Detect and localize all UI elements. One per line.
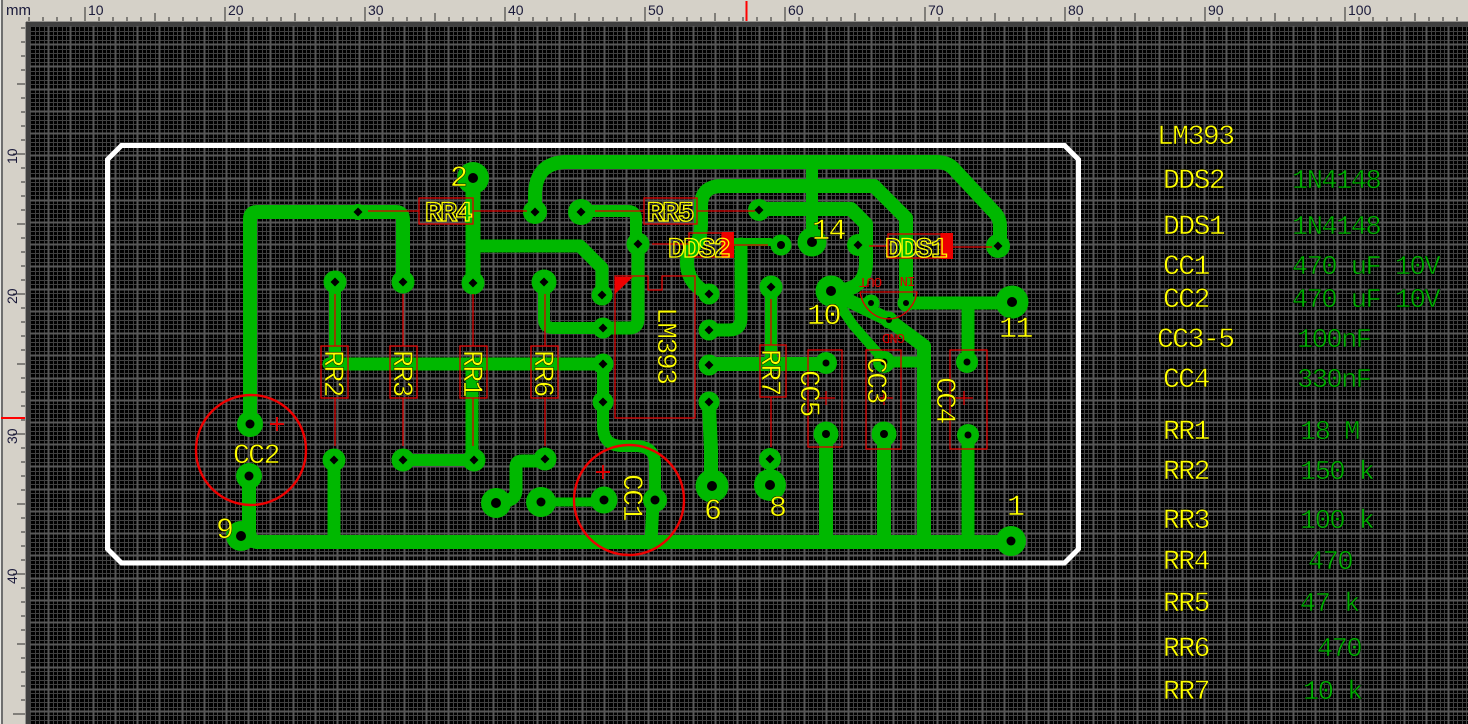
svg-text:RR5: RR5: [647, 199, 694, 230]
svg-text:20: 20: [4, 288, 20, 304]
svg-text:DDS2: DDS2: [668, 235, 730, 266]
svg-text:1N4148: 1N4148: [1292, 213, 1381, 243]
svg-text:RR4: RR4: [425, 199, 472, 230]
svg-text:100 k: 100 k: [1300, 507, 1374, 537]
svg-text:6: 6: [704, 495, 721, 529]
svg-text:20: 20: [228, 2, 244, 18]
svg-text:100: 100: [1348, 2, 1372, 18]
svg-text:18 M: 18 M: [1300, 418, 1359, 448]
svg-text:IN: IN: [900, 272, 915, 288]
svg-text:DDS1: DDS1: [885, 235, 947, 266]
svg-text:11: 11: [999, 313, 1033, 347]
svg-text:CC5: CC5: [792, 370, 823, 417]
svg-text:100nF: 100nF: [1297, 326, 1371, 356]
svg-text:47 k: 47 k: [1300, 590, 1359, 620]
svg-text:CC2: CC2: [233, 441, 279, 472]
svg-text:2: 2: [450, 162, 467, 196]
svg-text:CC1: CC1: [1163, 252, 1210, 283]
svg-text:RR4: RR4: [1163, 547, 1210, 578]
svg-text:RR3: RR3: [1163, 506, 1210, 537]
svg-text:CC3: CC3: [859, 357, 890, 404]
svg-text:CC4: CC4: [928, 377, 959, 424]
svg-text:RR1: RR1: [1163, 417, 1210, 448]
svg-text:9: 9: [216, 514, 233, 548]
svg-text:mm: mm: [6, 2, 31, 19]
svg-text:470 uF 10V: 470 uF 10V: [1292, 286, 1441, 316]
svg-text:60: 60: [788, 2, 804, 18]
svg-text:RR2: RR2: [1163, 457, 1209, 488]
svg-text:CC2: CC2: [1163, 285, 1209, 316]
svg-text:70: 70: [928, 2, 944, 18]
svg-text:CC1: CC1: [615, 474, 646, 521]
svg-text:GND: GND: [882, 329, 905, 345]
svg-text:RR3: RR3: [385, 350, 416, 397]
svg-text:150 k: 150 k: [1300, 458, 1374, 488]
svg-text:CC3-5: CC3-5: [1157, 325, 1234, 356]
svg-text:50: 50: [648, 2, 664, 18]
svg-text:80: 80: [1068, 2, 1084, 18]
svg-text:10 k: 10 k: [1303, 678, 1362, 708]
svg-text:470: 470: [1308, 548, 1352, 578]
svg-text:40: 40: [4, 568, 20, 584]
svg-text:30: 30: [4, 428, 20, 444]
svg-text:LM393: LM393: [1157, 122, 1234, 153]
svg-text:40: 40: [508, 2, 524, 18]
svg-text:RR1: RR1: [455, 350, 486, 397]
svg-text:RR6: RR6: [526, 350, 557, 396]
svg-text:330nF: 330nF: [1297, 366, 1371, 396]
svg-text:14: 14: [812, 215, 846, 249]
svg-text:RR2: RR2: [316, 350, 347, 396]
svg-text:DDS2: DDS2: [1163, 166, 1224, 197]
svg-text:RR7: RR7: [753, 349, 784, 395]
svg-text:470: 470: [1317, 635, 1361, 665]
svg-text:470 uF 10V: 470 uF 10V: [1292, 253, 1441, 283]
svg-text:1: 1: [1007, 491, 1024, 525]
svg-text:DDS1: DDS1: [1163, 212, 1225, 243]
svg-text:RR5: RR5: [1163, 589, 1210, 620]
svg-text:RR6: RR6: [1163, 634, 1209, 665]
svg-text:30: 30: [368, 2, 384, 18]
svg-text:RR7: RR7: [1163, 677, 1209, 708]
svg-text:10: 10: [88, 2, 104, 18]
svg-text:LM393: LM393: [649, 307, 680, 384]
svg-text:1N4148: 1N4148: [1292, 167, 1381, 197]
svg-text:10: 10: [4, 148, 20, 164]
svg-text:OUT: OUT: [859, 273, 882, 289]
svg-text:10: 10: [807, 300, 841, 334]
svg-text:CC4: CC4: [1163, 365, 1210, 396]
svg-text:8: 8: [769, 492, 786, 526]
svg-text:90: 90: [1208, 2, 1224, 18]
